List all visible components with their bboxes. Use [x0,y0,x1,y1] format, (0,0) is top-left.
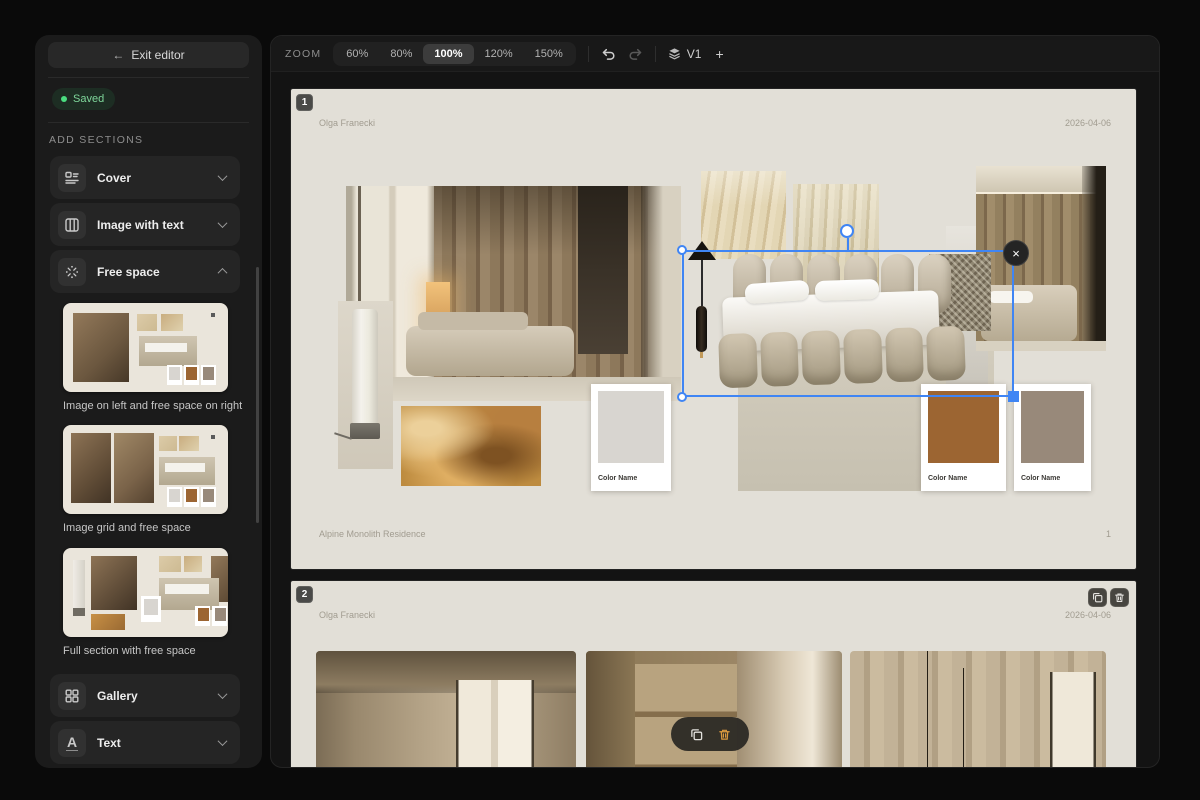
saved-status-badge: Saved [52,88,115,110]
color-swatch-card-brown[interactable]: Color Name [921,384,1006,491]
sidebar-scrollbar[interactable] [256,267,259,523]
chevron-up-icon [218,268,228,278]
app-window: { "icons": { "back_arrow": "←", "close_g… [0,0,1200,800]
cover-icon [58,164,86,192]
divider [48,122,249,123]
back-arrow-icon: ← [112,48,124,62]
gallery-icon [58,682,86,710]
gallery-image-3[interactable] [850,651,1106,768]
color-swatch-card-taupe[interactable]: Color Name [1014,384,1091,491]
moodboard-bedroom-photo[interactable] [346,186,681,401]
rotate-handle[interactable] [840,224,854,238]
template-caption: Full section with free space [63,645,262,657]
gallery-image-1[interactable] [316,651,576,768]
page-date-text[interactable]: 2026-04-06 [1065,118,1111,128]
page-2[interactable]: 2 Olga Franecki 2026-04-06 [291,581,1136,768]
redo-button[interactable] [628,47,643,61]
photo-pendant-cord [963,668,964,768]
selection-handle-bottom-left[interactable] [677,392,687,402]
chevron-down-icon [218,689,228,699]
template-caption: Image on left and free space on right [63,400,262,412]
floor-lamp-shade [352,309,378,425]
sidebar: ← Exit editor Saved ADD SECTIONS Cover I… [35,35,262,768]
color-swatch-card-light[interactable]: Color Name [591,384,671,491]
template-thumbnail [63,425,228,514]
page-number-badge: 2 [296,586,313,603]
photo-window [456,680,534,768]
deselect-close-button[interactable]: × [1003,240,1029,266]
section-label: Gallery [97,689,208,703]
selection-handle-bottom-right[interactable] [1008,391,1019,402]
delete-page-button[interactable] [1110,588,1129,607]
selection-box[interactable]: × [682,250,1014,397]
version-label: V1 [687,47,702,61]
color-swatch-label: Color Name [1021,475,1060,482]
selection-handle-top-left[interactable] [677,245,687,255]
template-thumbnail [63,548,228,637]
zoom-120-button[interactable]: 120% [474,44,524,64]
section-label: Text [97,736,208,750]
section-label: Image with text [97,218,208,232]
section-button-text[interactable]: A Text [50,721,240,764]
section-button-free-space[interactable]: Free space [50,250,240,293]
moodboard-floor-lamp-photo[interactable] [338,301,393,469]
chevron-down-icon [218,218,228,228]
photo-ceiling [316,651,576,693]
version-button[interactable]: V1 [668,47,702,61]
photo-shelves [635,664,737,768]
duplicate-image-button[interactable] [690,728,703,741]
versions-stack-icon [668,47,681,60]
section-label: Free space [97,265,208,279]
template-full-section-free-space[interactable]: Full section with free space [63,548,262,657]
chevron-down-icon [218,736,228,746]
saved-dot-icon [61,96,67,102]
page-footer-title[interactable]: Alpine Monolith Residence [319,529,426,539]
page-1[interactable]: 1 Olga Franecki 2026-04-06 Alpine Monoli… [291,89,1136,569]
page-date-text[interactable]: 2026-04-06 [1065,610,1111,620]
section-label: Cover [97,171,208,185]
template-image-left-free-space[interactable]: Image on left and free space on right [63,303,262,412]
template-image-grid-free-space[interactable]: Image grid and free space [63,425,262,534]
page-author-text[interactable]: Olga Franecki [319,610,375,620]
photo-doorway [578,186,628,354]
zoom-label: ZOOM [285,48,321,60]
page-author-text[interactable]: Olga Franecki [319,118,375,128]
zoom-60-button[interactable]: 60% [335,44,379,64]
zoom-80-button[interactable]: 80% [379,44,423,64]
editor-toolbar: ZOOM 60% 80% 100% 120% 150% V1 + [271,36,1159,72]
section-button-image-with-text[interactable]: Image with text [50,203,240,246]
floor-lamp-base [350,423,380,439]
color-swatch-fill [1021,391,1084,463]
rotate-handle-stem [847,238,849,252]
exit-editor-label: Exit editor [131,48,184,62]
photo-dark-edge [1082,166,1106,351]
color-swatch-label: Color Name [598,475,637,482]
zoom-100-button[interactable]: 100% [423,44,473,64]
free-space-icon [58,258,86,286]
photo-wood-column [586,651,635,768]
color-swatch-fill [928,391,999,463]
moodboard-marble-swatch[interactable] [401,406,541,486]
page-number-badge: 1 [296,94,313,111]
photo-corridor [737,651,842,768]
page-footer-number: 1 [1106,529,1111,539]
color-swatch-fill [598,391,664,463]
photo-right-wall [641,186,681,401]
toolbar-divider [588,46,589,62]
moodboard-travertine-swatch-1[interactable] [701,171,786,259]
template-thumbnail [63,303,228,392]
text-icon: A [58,729,86,757]
photo-bed [406,326,574,376]
image-hover-actions [671,717,749,751]
template-caption: Image grid and free space [63,522,262,534]
photo-pendant-cord [927,651,928,768]
section-button-cover[interactable]: Cover [50,156,240,199]
chevron-down-icon [218,171,228,181]
color-swatch-label: Color Name [928,475,967,482]
toolbar-divider [655,46,656,62]
add-version-button[interactable]: + [713,46,725,62]
photo-lamp-glow [876,767,953,769]
delete-image-button[interactable] [718,728,731,741]
section-button-gallery[interactable]: Gallery [50,674,240,717]
page-actions [1088,588,1129,607]
divider [48,77,249,78]
image-with-text-icon [58,211,86,239]
saved-label: Saved [73,93,104,105]
duplicate-page-button[interactable] [1088,588,1107,607]
undo-button[interactable] [601,47,616,61]
editor-main-panel: ZOOM 60% 80% 100% 120% 150% V1 + 1 Olga … [270,35,1160,768]
photo-window [1050,672,1096,768]
zoom-150-button[interactable]: 150% [524,44,574,64]
exit-editor-button[interactable]: ← Exit editor [48,42,249,68]
zoom-button-group: 60% 80% 100% 120% 150% [333,42,575,66]
add-sections-heading: ADD SECTIONS [49,134,143,146]
